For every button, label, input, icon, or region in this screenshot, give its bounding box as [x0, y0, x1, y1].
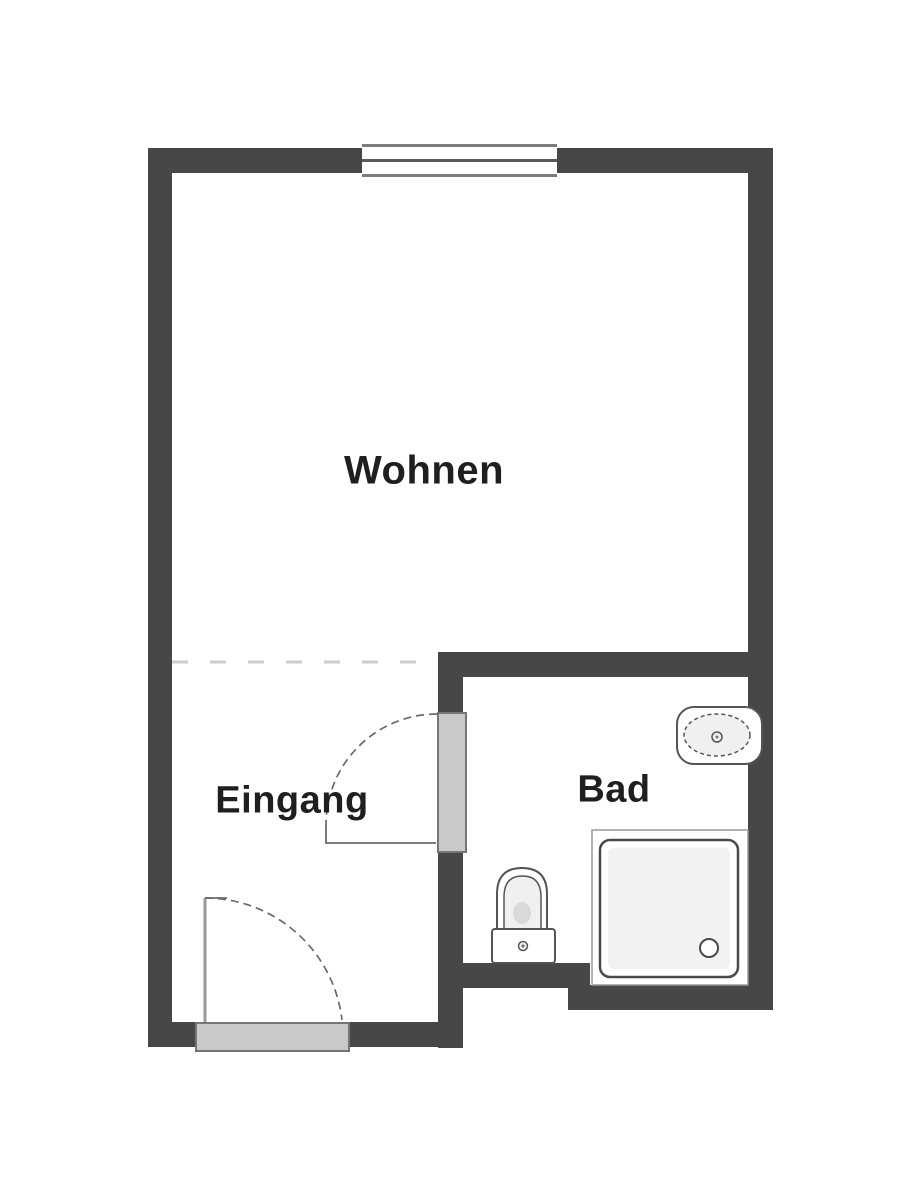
sink [677, 707, 762, 764]
room-label-bad: Bad [577, 769, 650, 812]
shower [592, 830, 748, 985]
room-label-eingang: Eingang [215, 780, 368, 823]
entrance-door-arc [205, 898, 342, 1020]
room-label-wohnen: Wohnen [344, 449, 504, 494]
sink-drain-dot [716, 736, 719, 739]
interior-door-panel [437, 712, 467, 853]
floor-plan-canvas: Wohnen Eingang Bad [0, 0, 924, 1200]
toilet-bowl-shade [513, 902, 531, 924]
toilet [492, 868, 555, 963]
shower-drain [700, 939, 718, 957]
entrance-door-panel [195, 1022, 350, 1052]
fixtures-layer [0, 0, 924, 1200]
interior-door-leaf-line [326, 825, 436, 843]
interior-door-swing [326, 714, 437, 843]
toilet-flush-button-dot [521, 944, 524, 947]
entrance-door-swing [205, 898, 342, 1022]
